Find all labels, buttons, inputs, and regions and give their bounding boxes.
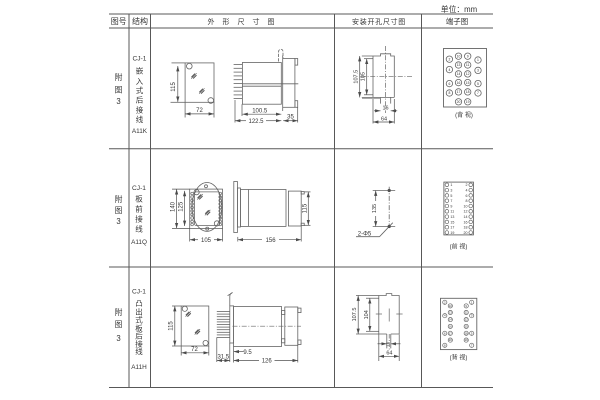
svg-text:(前 视): (前 视) (450, 242, 468, 250)
svg-text:图: 图 (115, 86, 123, 95)
svg-text:15: 15 (450, 220, 454, 224)
svg-text:3: 3 (116, 334, 120, 343)
svg-text:10: 10 (449, 304, 453, 308)
svg-text:图: 图 (115, 206, 123, 215)
svg-text:后: 后 (136, 95, 144, 105)
svg-text:9.5: 9.5 (243, 350, 252, 356)
svg-text:线: 线 (135, 346, 143, 356)
svg-text:嵌: 嵌 (136, 66, 144, 75)
svg-text:16: 16 (449, 324, 453, 328)
svg-text:72: 72 (196, 108, 203, 114)
svg-text:64: 64 (386, 351, 392, 357)
svg-text:9: 9 (467, 54, 469, 58)
svg-text:19: 19 (466, 100, 470, 104)
svg-text:2: 2 (466, 183, 468, 187)
svg-text:10: 10 (457, 54, 461, 58)
svg-text:3: 3 (116, 217, 120, 226)
svg-text:19: 19 (450, 231, 454, 235)
svg-text:18: 18 (464, 226, 468, 230)
svg-text:122.5: 122.5 (248, 119, 264, 125)
svg-text:1: 1 (477, 58, 479, 62)
svg-text:CJ-1: CJ-1 (133, 55, 147, 62)
svg-text:7: 7 (477, 91, 479, 95)
svg-text:115: 115 (171, 82, 177, 92)
svg-text:135: 135 (372, 204, 378, 213)
svg-text:5: 5 (477, 82, 479, 86)
svg-text:入: 入 (136, 77, 144, 86)
svg-text:17: 17 (449, 331, 453, 335)
svg-text:CJ-1: CJ-1 (132, 289, 146, 296)
svg-text:6: 6 (466, 194, 468, 198)
svg-text:115: 115 (302, 203, 308, 213)
svg-text:7: 7 (450, 199, 452, 203)
svg-text:13: 13 (457, 63, 461, 67)
svg-text:20: 20 (464, 231, 468, 235)
svg-text:式: 式 (136, 85, 144, 95)
svg-text:16: 16 (385, 341, 390, 347)
svg-text:17: 17 (457, 90, 461, 94)
svg-text:20: 20 (449, 338, 453, 342)
svg-text:14: 14 (457, 72, 461, 76)
svg-text:图号: 图号 (111, 17, 127, 26)
svg-text:6: 6 (448, 82, 450, 86)
svg-text:16: 16 (382, 105, 388, 111)
svg-text:104: 104 (364, 310, 370, 319)
svg-text:A11K: A11K (132, 128, 148, 135)
svg-text:140: 140 (170, 201, 176, 212)
svg-text:11: 11 (465, 311, 468, 315)
svg-text:线: 线 (136, 114, 144, 124)
svg-text:附: 附 (115, 194, 123, 204)
svg-text:接: 接 (135, 214, 143, 224)
svg-text:CJ-1: CJ-1 (132, 185, 146, 192)
svg-text:安装开孔尺寸图: 安装开孔尺寸图 (352, 17, 406, 26)
svg-text:4: 4 (448, 68, 450, 72)
svg-text:107.5: 107.5 (352, 308, 358, 322)
svg-text:16: 16 (457, 81, 461, 85)
svg-text:115: 115 (169, 321, 175, 331)
svg-text:18: 18 (465, 331, 469, 335)
svg-text:19: 19 (465, 338, 469, 342)
svg-text:(背 视): (背 视) (455, 111, 473, 119)
svg-text:前: 前 (135, 204, 143, 214)
svg-text:2-Φ5: 2-Φ5 (358, 232, 372, 238)
svg-text:3: 3 (450, 189, 452, 193)
svg-text:12: 12 (464, 210, 468, 214)
svg-text:12: 12 (466, 72, 470, 76)
svg-text:156: 156 (266, 238, 277, 244)
svg-text:105: 105 (201, 238, 212, 244)
svg-text:8: 8 (466, 199, 468, 203)
svg-text:13: 13 (450, 215, 454, 219)
svg-text:5: 5 (450, 194, 452, 198)
svg-text:图: 图 (115, 320, 123, 329)
svg-text:板: 板 (135, 194, 143, 204)
svg-text:3: 3 (477, 69, 479, 73)
svg-text:15: 15 (466, 81, 470, 85)
svg-text:8: 8 (448, 91, 450, 95)
svg-text:端子图: 端子图 (446, 17, 468, 26)
svg-text:31.5: 31.5 (217, 355, 229, 361)
svg-text:64: 64 (381, 117, 387, 123)
svg-text:10: 10 (464, 204, 468, 208)
svg-text:11: 11 (450, 210, 454, 214)
svg-text:线: 线 (135, 224, 143, 234)
svg-text:105: 105 (360, 72, 366, 81)
svg-text:附: 附 (115, 307, 123, 317)
svg-text:12: 12 (465, 318, 469, 322)
svg-text:A11Q: A11Q (131, 239, 147, 246)
svg-text:17: 17 (450, 226, 454, 230)
svg-text:35: 35 (287, 115, 294, 121)
svg-text:13: 13 (449, 311, 453, 315)
svg-text:20: 20 (457, 100, 461, 104)
svg-text:外形尺寸图: 外形尺寸图 (208, 17, 283, 26)
svg-text:18: 18 (466, 90, 470, 94)
svg-text:附: 附 (115, 72, 123, 82)
svg-text:100.5: 100.5 (252, 108, 268, 114)
svg-text:125: 125 (178, 201, 184, 212)
svg-text:9: 9 (450, 204, 452, 208)
svg-text:16: 16 (464, 220, 468, 224)
svg-text:14: 14 (449, 318, 453, 322)
svg-text:126: 126 (262, 359, 273, 365)
svg-text:结构: 结构 (132, 16, 148, 26)
svg-text:11: 11 (466, 63, 470, 67)
svg-text:107.5: 107.5 (353, 70, 359, 84)
svg-text:2: 2 (448, 57, 450, 61)
svg-text:15: 15 (465, 324, 469, 328)
svg-text:14: 14 (464, 215, 468, 219)
svg-text:(背 视): (背 视) (450, 354, 468, 362)
svg-text:接: 接 (136, 104, 144, 114)
svg-text:3: 3 (116, 97, 120, 106)
svg-text:4: 4 (466, 189, 468, 193)
svg-text:1: 1 (450, 183, 452, 187)
svg-text:72: 72 (191, 347, 198, 353)
svg-text:A11H: A11H (131, 364, 147, 371)
svg-text:单位：mm: 单位：mm (441, 4, 477, 14)
